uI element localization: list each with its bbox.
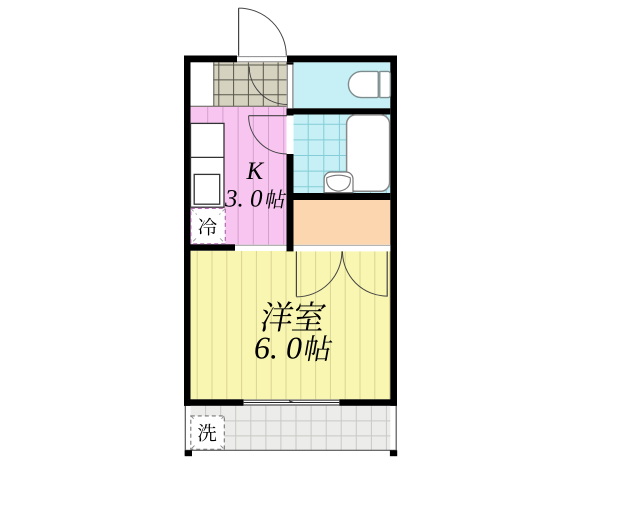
svg-text:6. 0: 6. 0 — [254, 330, 302, 366]
svg-text:3. 0: 3. 0 — [224, 186, 263, 213]
svg-text:K: K — [246, 158, 265, 185]
